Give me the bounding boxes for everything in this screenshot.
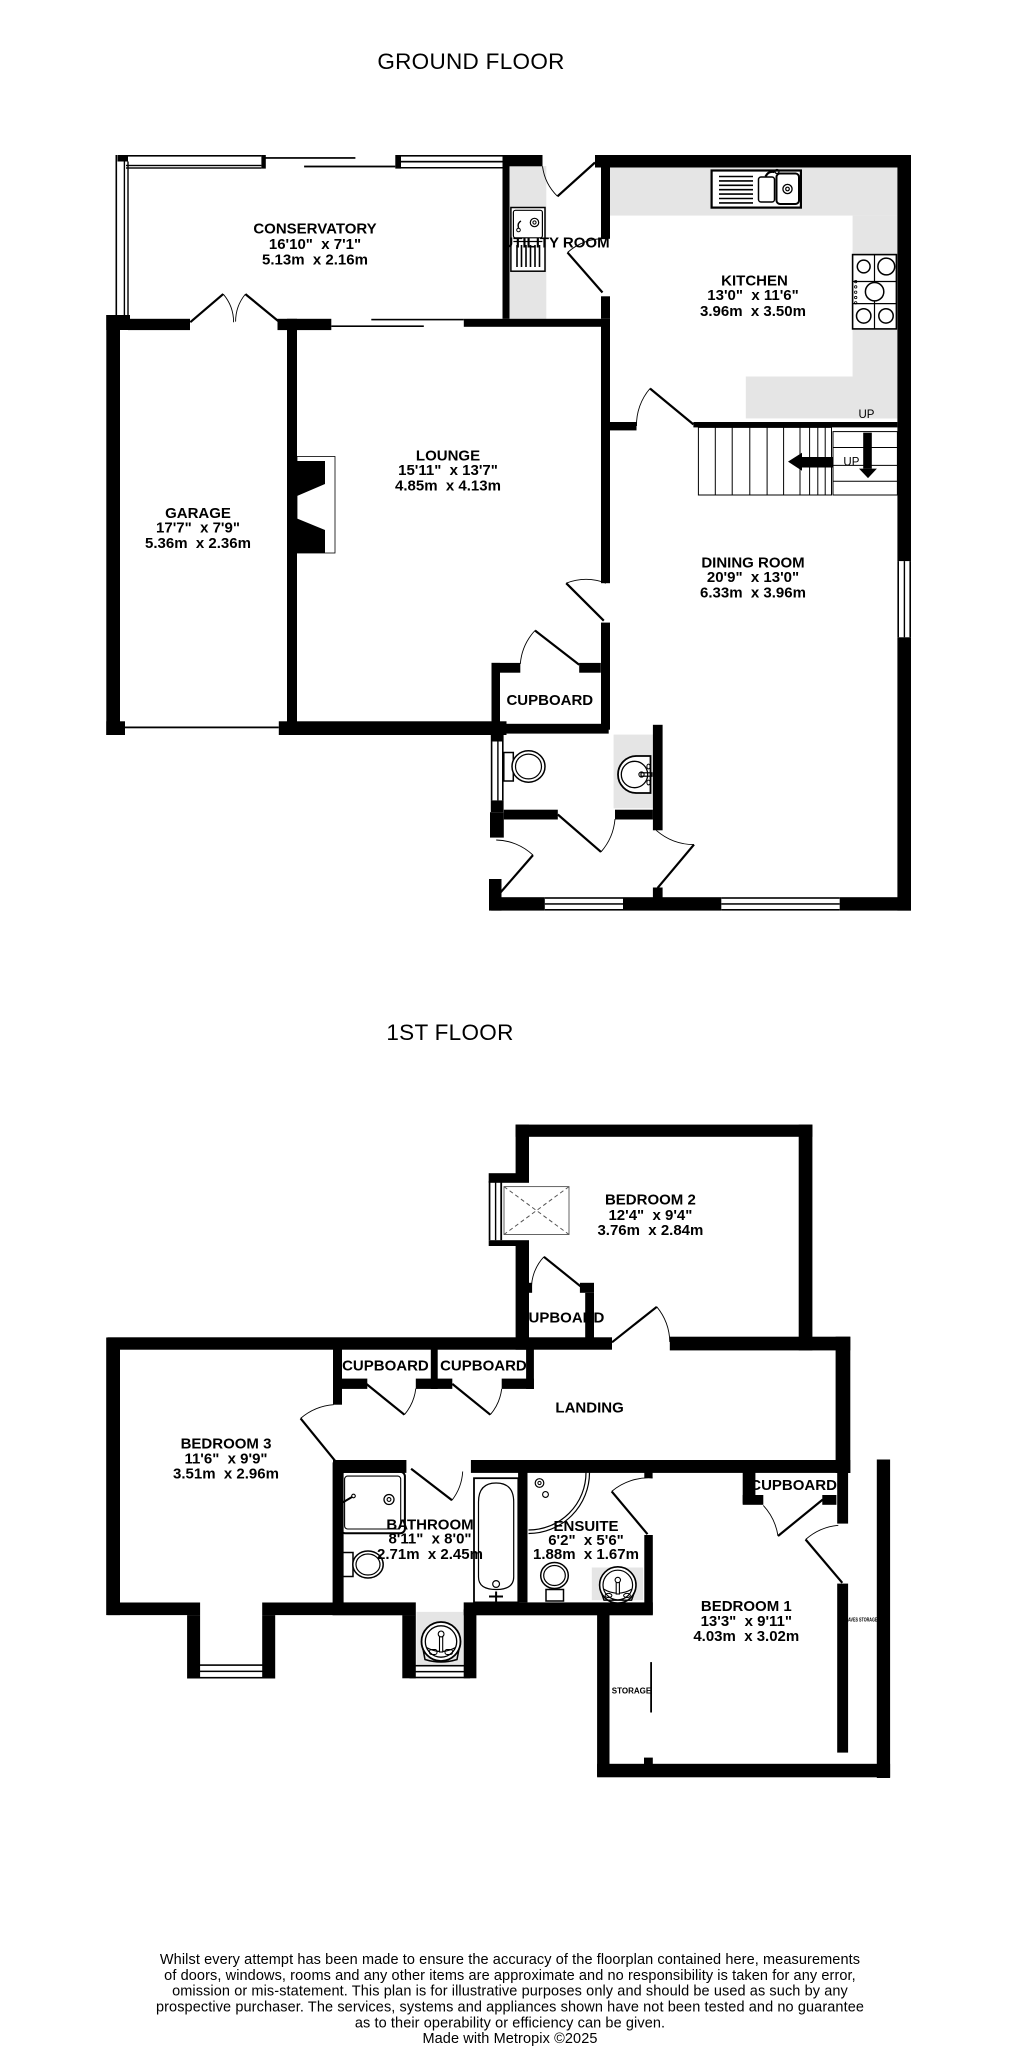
svg-text:BEDROOM 2: BEDROOM 2 — [605, 1192, 696, 1209]
svg-text:3.76m x 2.84m: 3.76m x 2.84m — [597, 1222, 703, 1239]
svg-text:as to their operability or eff: as to their operability or efficiency ca… — [355, 2015, 665, 2031]
svg-text:13'0" x 11'6": 13'0" x 11'6" — [707, 287, 798, 304]
svg-text:4.03m x 3.02m: 4.03m x 3.02m — [693, 1628, 799, 1645]
svg-text:UP: UP — [843, 457, 859, 469]
svg-text:CUPBOARD: CUPBOARD — [506, 692, 593, 709]
svg-text:3.51m x 2.96m: 3.51m x 2.96m — [173, 1466, 279, 1483]
svg-text:GROUND FLOOR: GROUND FLOOR — [377, 49, 564, 74]
svg-text:3.96m x 3.50m: 3.96m x 3.50m — [700, 303, 806, 320]
svg-text:2.71m x 2.45m: 2.71m x 2.45m — [377, 1546, 483, 1563]
svg-text:16'10" x 7'1": 16'10" x 7'1" — [269, 236, 361, 253]
svg-text:CUPBOARD: CUPBOARD — [342, 1358, 429, 1375]
svg-text:CUPBOARD: CUPBOARD — [750, 1477, 837, 1494]
svg-text:STORAGE: STORAGE — [612, 1687, 652, 1696]
svg-text:CUPBOARD: CUPBOARD — [440, 1358, 527, 1375]
svg-text:1ST FLOOR: 1ST FLOOR — [386, 1020, 513, 1045]
svg-text:omission or mis-statement. Thi: omission or mis-statement. This plan is … — [172, 1984, 848, 2000]
svg-text:4.85m x 4.13m: 4.85m x 4.13m — [395, 478, 501, 495]
svg-text:UTILITY ROOM: UTILITY ROOM — [502, 235, 609, 252]
svg-text:UP: UP — [859, 409, 875, 421]
svg-text:LANDING: LANDING — [555, 1400, 623, 1417]
svg-text:Made with Metropix ©2025: Made with Metropix ©2025 — [422, 2031, 597, 2047]
svg-text:Whilst every attempt has been: Whilst every attempt has been made to en… — [160, 1952, 860, 1968]
svg-text:prospective purchaser. The ser: prospective purchaser. The services, sys… — [156, 2000, 864, 2016]
svg-text:of doors, windows, rooms and a: of doors, windows, rooms and any other i… — [164, 1968, 856, 1984]
svg-text:15'11" x 13'7": 15'11" x 13'7" — [398, 462, 498, 479]
svg-text:17'7" x 7'9": 17'7" x 7'9" — [156, 520, 240, 537]
svg-text:20'9" x 13'0": 20'9" x 13'0" — [707, 569, 799, 586]
svg-text:EAVES STORAGE: EAVES STORAGE — [846, 1617, 878, 1623]
svg-text:CONSERVATORY: CONSERVATORY — [253, 221, 376, 238]
svg-text:1.88m x 1.67m: 1.88m x 1.67m — [533, 1546, 639, 1563]
svg-text:8'11" x 8'0": 8'11" x 8'0" — [388, 1531, 471, 1548]
svg-text:6.33m x 3.96m: 6.33m x 3.96m — [700, 585, 806, 602]
svg-text:5.36m x 2.36m: 5.36m x 2.36m — [145, 535, 251, 552]
svg-text:5.13m x 2.16m: 5.13m x 2.16m — [262, 252, 368, 269]
